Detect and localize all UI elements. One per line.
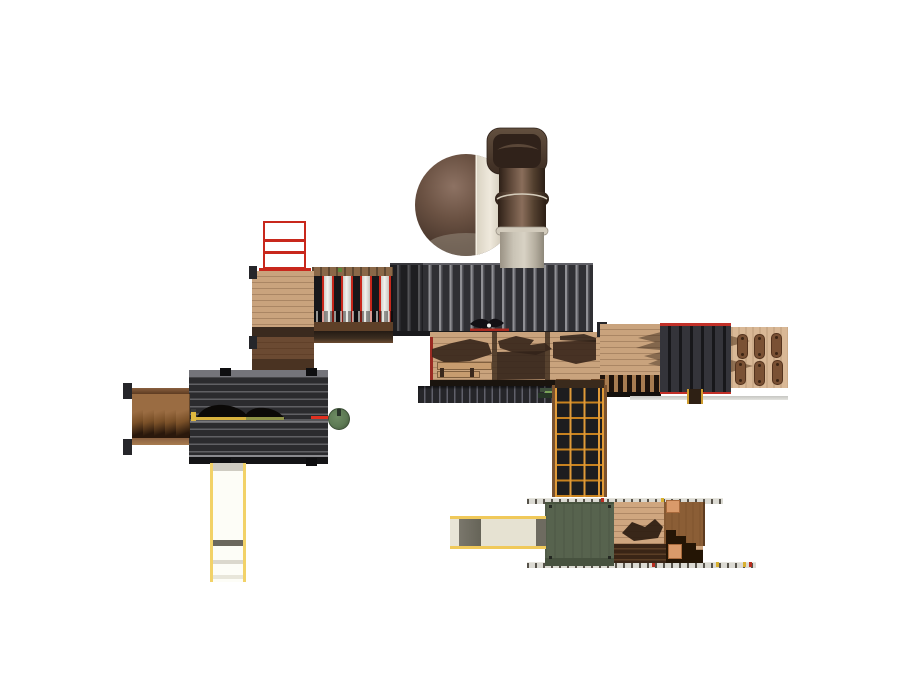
slat-bridge [312,267,393,331]
slide-cross-band [213,540,243,546]
ramp-rail-bottom [450,546,546,549]
red-ladder-frame [263,221,306,269]
ridge-red-bar [470,329,509,332]
green-roof-bottom-band [545,558,614,566]
right-roof [660,323,731,394]
slide-entry-lip [213,463,243,471]
red-ladder [259,221,311,274]
slat-bridge-rung-band [312,311,393,322]
tube-slide [410,118,550,270]
picnic-bench-top [437,362,492,370]
right-roof-body [660,326,731,392]
green-roof [545,502,614,566]
shadow-blob [432,339,492,363]
wall-hand-slot [771,333,782,358]
hump-rail-yellow [196,417,246,420]
steering-wheel-handle [337,409,341,416]
ridge-ornament [465,311,513,333]
roof-bolt [608,556,611,559]
ramp-bed-tip [450,519,459,546]
peach-post [668,544,682,559]
main-roof-shade-left [390,263,423,336]
bench-shadow [622,519,663,541]
entry-ramp-shade-band [252,327,314,337]
tube-top-box-bowl [493,134,541,168]
rail-speck-red [749,562,752,567]
steering-wheel [328,408,350,430]
stairs-post [123,383,132,399]
slat-bridge-under-shadow [312,331,393,343]
slide-bed [213,463,243,582]
roof-bolt [608,505,611,508]
yellow-handhold [191,412,196,421]
net-climber [555,388,604,497]
platform-post [220,368,231,376]
entry-ramp-mid [252,337,314,359]
wall-hand-slot [754,361,765,386]
hump-rail-olive [246,417,284,420]
shadow-spikes [560,334,596,342]
wall-hand-slot [735,360,746,385]
roof-bolt [549,505,552,508]
slide-faint-band [213,560,243,564]
rail-speck-yellow [716,562,719,567]
roof-bolt [549,556,552,559]
bridge-shadows [600,324,661,376]
wall-hand-slot [772,360,783,385]
plank-bridge-rungs [600,375,661,392]
wall-hand-slot [754,334,765,359]
red-ladder-rung [265,251,305,254]
slide-end-band [213,575,243,579]
peach-post [666,500,680,513]
ramp-corner-post [249,336,257,349]
ramp-bed [481,519,536,546]
ramp-gray-left [459,519,481,546]
bench-leg [440,368,444,377]
platform-post [306,458,317,466]
stairs [132,394,189,438]
slat-bridge-top-rail [312,267,393,276]
bird-eye-dot [487,324,491,328]
climber-header [555,380,604,388]
ramp-gray-right [536,519,546,546]
slide-rail-right [243,463,246,582]
slat-bridge-bottom-rail [312,322,393,331]
ramp-corner-post [249,266,257,279]
bench-leg [470,368,474,377]
green-speck [338,268,342,272]
yellow-edged-post [687,389,703,404]
shadow-blob [553,340,596,364]
rail-speck-yellow [743,562,746,567]
shadow-slab [497,351,545,380]
entry-ramp [252,271,314,386]
slide-rail-left [210,463,213,582]
stairs-bottom-rail [132,438,189,445]
entry-ramp-upper [252,271,314,333]
steering-wheel-stem [311,416,329,419]
ground-shadow [630,396,788,400]
shadow-spikes [644,352,661,366]
tube-band-edge-l [476,152,478,258]
stair-tread [176,394,190,438]
platform-post [306,368,317,376]
straight-slide [210,463,246,582]
red-ladder-rung [265,239,305,242]
crawl-ramp [450,516,546,549]
stairs-post [123,439,132,455]
deck-eave-strip [418,386,556,403]
lower-deck-shadows [614,502,703,563]
shadow-spikes [636,332,661,350]
render-canvas [0,0,900,700]
tube-cylinder [500,232,544,268]
bird-silhouette [470,319,504,329]
ramp-rail-top [450,516,546,519]
wall-hand-slot [737,334,748,359]
